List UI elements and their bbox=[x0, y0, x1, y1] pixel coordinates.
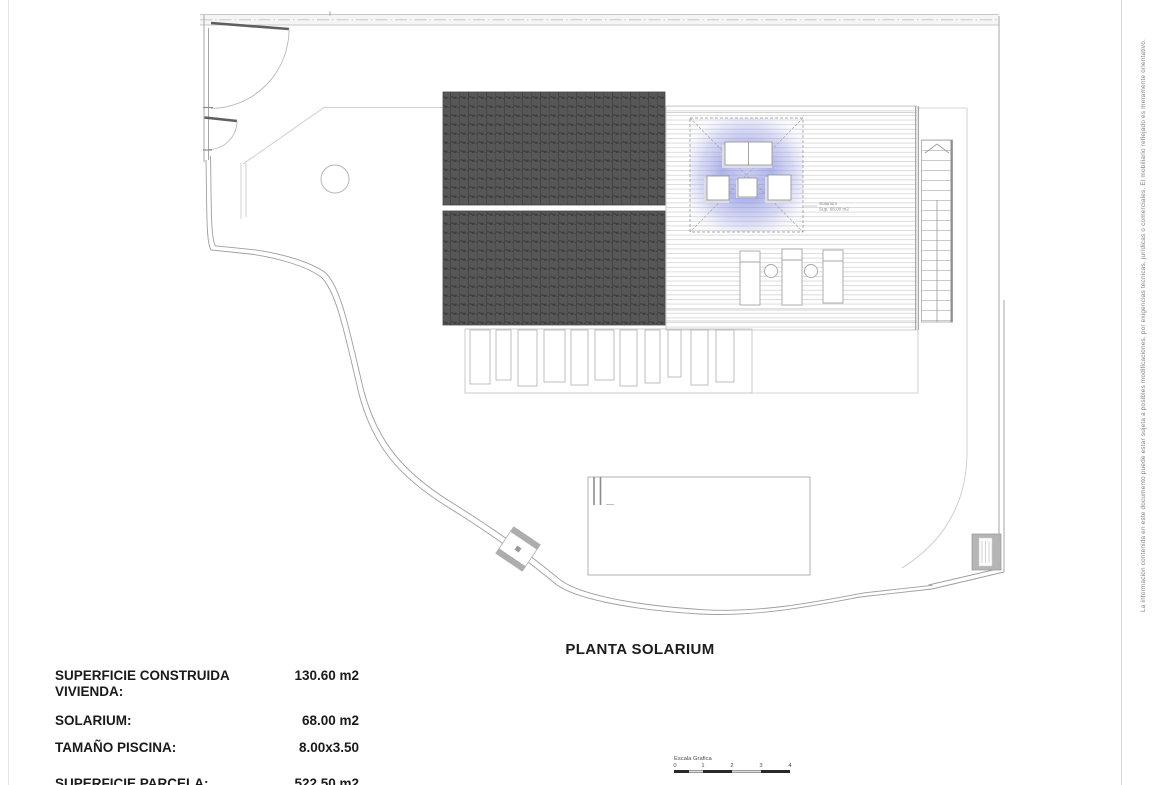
scale-tick: 3 bbox=[759, 763, 762, 769]
plan-title: PLANTA SOLARIUM bbox=[480, 641, 800, 658]
sun-lounger bbox=[782, 249, 802, 305]
entrance-gates bbox=[203, 23, 289, 150]
gate-leaf-small bbox=[205, 118, 238, 122]
roof-tiled-upper bbox=[443, 92, 665, 205]
scale-tick: 0 bbox=[673, 763, 676, 769]
spec-row-parcela: SUPERFICIE PARCELA: 522.50 m2 bbox=[55, 776, 359, 785]
scale-label: Escala Grafica bbox=[674, 756, 804, 762]
sofa bbox=[722, 142, 772, 168]
spec-value: 68.00 m2 bbox=[287, 713, 359, 729]
graphic-scale: Escala Grafica 0 1 2 3 4 bbox=[674, 756, 804, 773]
gate-swing-arc-small bbox=[209, 121, 238, 150]
scale-tick: 2 bbox=[730, 763, 733, 769]
spec-value: 130.60 m2 bbox=[287, 668, 359, 700]
sheet-border-right bbox=[1121, 0, 1122, 785]
spec-row-piscina: TAMAÑO PISCINA: 8.00x3.50 bbox=[55, 740, 359, 756]
side-table bbox=[805, 265, 818, 278]
roof-tiled-lower bbox=[443, 211, 665, 325]
pergola-rafters bbox=[465, 329, 918, 393]
spec-label: SOLARIUM: bbox=[55, 713, 287, 729]
plan-sheet: Solarium Sup. 68.00 m2 La información co… bbox=[0, 0, 1170, 785]
spec-label: TAMAÑO PISCINA: bbox=[55, 740, 287, 756]
spec-row-solarium: SOLARIUM: 68.00 m2 bbox=[55, 713, 359, 729]
surface-specs: SUPERFICIE CONSTRUIDA VIVIENDA: 130.60 m… bbox=[55, 668, 359, 785]
legal-disclaimer-text: La información contenida en este documen… bbox=[1140, 26, 1147, 612]
lounge-area bbox=[690, 118, 803, 232]
sheet-border-left bbox=[8, 0, 9, 785]
scale-tick: 4 bbox=[788, 763, 791, 769]
spec-label: SUPERFICIE CONSTRUIDA VIVIENDA: bbox=[55, 668, 287, 700]
side-table bbox=[765, 265, 778, 278]
solarium-label-line1: Solarium bbox=[819, 201, 837, 206]
street-strip bbox=[200, 12, 999, 26]
spec-row-vivienda: SUPERFICIE CONSTRUIDA VIVIENDA: 130.60 m… bbox=[55, 668, 359, 700]
sun-lounger bbox=[823, 250, 843, 303]
sun-loungers bbox=[740, 249, 843, 305]
scale-tick: 1 bbox=[701, 763, 704, 769]
utility-box bbox=[972, 534, 1001, 570]
scale-ticks: 0 1 2 3 4 bbox=[674, 763, 804, 770]
spec-label: SUPERFICIE PARCELA: bbox=[55, 776, 287, 785]
solarium-label-line2: Sup. 68.00 m2 bbox=[819, 207, 849, 212]
spec-value: 8.00x3.50 bbox=[287, 740, 359, 756]
scale-bar bbox=[674, 770, 790, 773]
gate-swing-arc-large bbox=[211, 29, 289, 109]
spec-value: 522.50 m2 bbox=[287, 776, 359, 785]
shower-tray bbox=[496, 527, 540, 571]
sun-lounger bbox=[740, 251, 760, 305]
armchair-right bbox=[765, 175, 791, 203]
tree-circle bbox=[321, 165, 349, 193]
armchair-left bbox=[704, 176, 729, 203]
coffee-table bbox=[736, 178, 757, 198]
stairs-icon bbox=[922, 140, 953, 322]
pool bbox=[588, 477, 810, 575]
